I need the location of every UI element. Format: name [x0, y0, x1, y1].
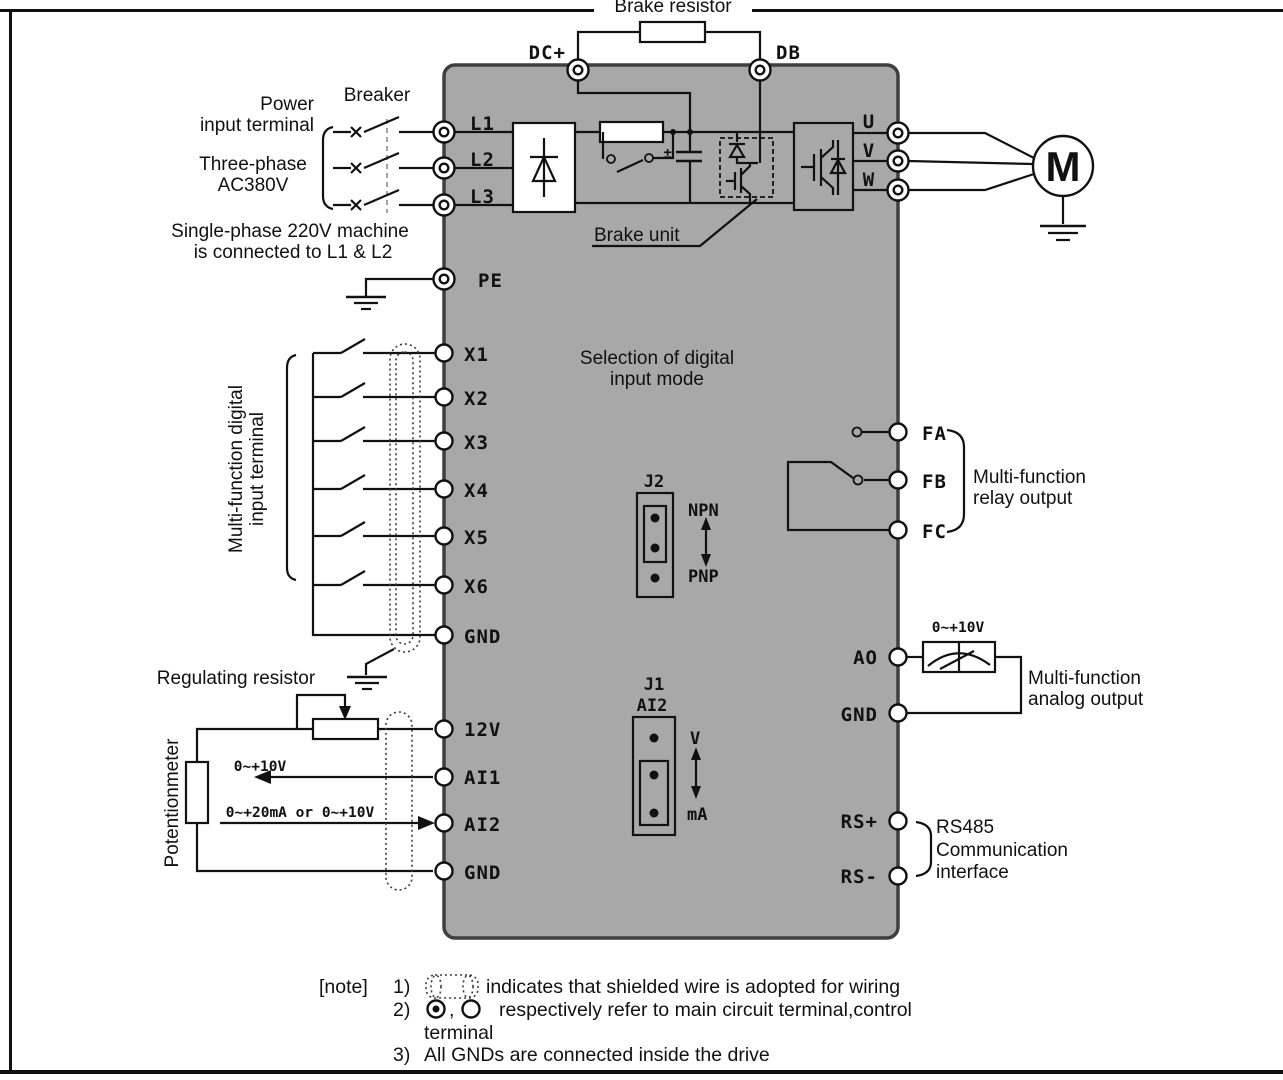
brake-resistor-label: Brake resistor: [614, 0, 732, 17]
note-2-text-cont: terminal: [424, 1022, 493, 1044]
note-3-text: All GNDs are connected inside the drive: [424, 1044, 770, 1066]
brake-resistor-symbol: [640, 22, 705, 42]
l2-label: L2: [470, 149, 495, 171]
terminal-dc-plus: [568, 60, 589, 81]
pe-label: PE: [478, 270, 503, 292]
breaker-label: Breaker: [344, 85, 411, 106]
gnd-out-label: GND: [841, 704, 878, 726]
brake-unit-label: Brake unit: [594, 225, 680, 246]
notes-section: [note] 1) indicates that shielded wire i…: [319, 975, 912, 1066]
relay-bracket: [947, 430, 964, 532]
note-3-number: 3): [393, 1044, 410, 1066]
regulating-resistor-label: Regulating resistor: [157, 668, 316, 689]
capacitor-polarity: ±: [663, 146, 672, 162]
j1-label: J1: [644, 675, 664, 695]
rs-minus-label: RS-: [841, 866, 878, 888]
terminal-l3: [434, 195, 455, 216]
terminal-w: [888, 180, 909, 201]
terminal-l1: [434, 122, 455, 143]
analog-output-section: 0~+10V Multi-function analog output: [907, 620, 1144, 713]
rs-plus-label: RS+: [841, 811, 878, 833]
ao-label: AO: [853, 647, 878, 669]
potentiometer-symbol: [186, 762, 208, 823]
terminal-x5: [436, 528, 453, 545]
relay-output-label-2: relay output: [973, 488, 1073, 509]
terminal-gnd-digital: [436, 627, 453, 644]
power-input-label-1: Power: [260, 94, 315, 115]
relay-output-label-1: Multi-function: [973, 467, 1086, 488]
terminal-rs-plus: [890, 813, 907, 830]
analog-output-label-1: Multi-function: [1028, 668, 1141, 689]
terminal-v: [888, 151, 909, 172]
ai1-range-label: 0~+10V: [234, 759, 287, 775]
j1-v-label: V: [690, 729, 700, 749]
ao-range-label: 0~+10V: [932, 620, 985, 636]
note-1-number: 1): [393, 976, 410, 998]
u-label: U: [863, 111, 875, 133]
power-input-section: Power input terminal Breaker Three-phase…: [171, 85, 433, 263]
gnd-analog-label: GND: [464, 862, 501, 884]
three-phase-label-2: AC380V: [218, 175, 289, 196]
x5-label: X5: [464, 527, 489, 549]
fb-label: FB: [922, 471, 947, 493]
terminal-ai2: [436, 815, 453, 832]
main-terminal-icon: [428, 1001, 445, 1018]
j2-npn-label: NPN: [688, 501, 719, 521]
terminal-fa: [890, 424, 907, 441]
terminal-gnd-out: [890, 705, 907, 722]
terminal-x6: [436, 577, 453, 594]
analog-input-section: Regulating resistor Potentionmeter 0~+10…: [157, 668, 435, 890]
rs485-bracket: [916, 822, 931, 876]
charging-resistor: [600, 122, 663, 142]
analog-output-label-2: analog output: [1028, 689, 1144, 710]
digital-group-label-2: input terminal: [247, 412, 268, 526]
j2-label: J2: [644, 472, 664, 492]
single-phase-note-1: Single-phase 220V machine: [171, 221, 409, 242]
terminal-rs-minus: [890, 868, 907, 885]
single-phase-note-2: is connected to L1 & L2: [194, 242, 393, 263]
terminal-fc: [890, 522, 907, 539]
12v-label: 12V: [464, 719, 501, 741]
terminal-gnd-analog: [436, 863, 453, 880]
regulating-resistor-symbol: [313, 719, 378, 739]
terminal-x2: [436, 389, 453, 406]
rs485-label-3: interface: [936, 862, 1009, 883]
x2-label: X2: [464, 388, 489, 410]
j1-ma-label: mA: [687, 805, 707, 825]
three-phase-label-1: Three-phase: [199, 154, 307, 175]
terminal-u: [888, 123, 909, 144]
breaker-pole-l3: [333, 190, 433, 210]
l3-label: L3: [470, 186, 495, 208]
terminal-x1: [436, 345, 453, 362]
rs485-section: RS485 Communication interface: [916, 817, 1068, 883]
terminal-db: [750, 60, 771, 81]
x4-label: X4: [464, 480, 489, 502]
note-2-separator: ,: [449, 999, 454, 1021]
breaker-pole-l2: [333, 153, 433, 173]
j1-sub-label: AI2: [637, 696, 668, 716]
digital-mode-label-1: Selection of digital: [580, 348, 734, 369]
rs485-label-1: RS485: [936, 817, 994, 838]
j2-pnp-label: PNP: [688, 567, 719, 587]
shielded-wire-icon: [426, 975, 478, 998]
pe-ground: [346, 279, 433, 309]
gnd-digital-label: GND: [464, 626, 501, 648]
shield-ground: [347, 649, 394, 689]
note-1-text: indicates that shielded wire is adopted …: [486, 976, 900, 998]
digital-bracket: [287, 355, 296, 580]
note-2-number: 2): [393, 999, 410, 1021]
ai2-range-label: 0~+20mA or 0~+10V: [226, 805, 375, 821]
breaker-pole-l1: [333, 117, 433, 137]
dc-plus-label: DC+: [529, 42, 566, 64]
ai2-label: AI2: [464, 814, 501, 836]
w-label: W: [863, 169, 875, 191]
power-input-label-2: input terminal: [200, 115, 314, 136]
motor-section: M: [908, 133, 1093, 240]
terminal-pe: [434, 269, 455, 290]
ai1-label: AI1: [464, 767, 501, 789]
potentiometer-label: Potentionmeter: [162, 738, 183, 868]
db-label: DB: [776, 42, 801, 64]
terminal-x4: [436, 481, 453, 498]
terminal-12v: [436, 721, 453, 738]
vfd-wiring-diagram-page: Brake resistor DC+ DB Power input termin…: [0, 0, 1283, 1080]
terminal-ao: [890, 649, 907, 666]
l1-label: L1: [470, 113, 495, 135]
terminal-ai1: [436, 769, 453, 786]
digital-switches: [313, 339, 435, 585]
digital-mode-label-2: input mode: [610, 369, 704, 390]
input-bracket: [323, 127, 333, 209]
note-2-text: respectively refer to main circuit termi…: [499, 999, 912, 1021]
digital-input-section: Multi-function digital input terminal: [226, 339, 435, 689]
terminal-x3: [436, 433, 453, 450]
x1-label: X1: [464, 344, 489, 366]
rs485-label-2: Communication: [936, 840, 1068, 861]
note-tag: [note]: [319, 976, 368, 998]
fa-label: FA: [922, 423, 947, 445]
x6-label: X6: [464, 576, 489, 598]
motor-letter: M: [1046, 143, 1081, 190]
control-terminal-icon: [463, 1001, 480, 1018]
digital-group-label-1: Multi-function digital: [226, 385, 247, 553]
x3-label: X3: [464, 432, 489, 454]
terminal-fb: [890, 472, 907, 489]
wiring-diagram: Brake resistor DC+ DB Power input termin…: [0, 0, 1283, 1080]
fc-label: FC: [922, 521, 947, 543]
v-label: V: [863, 140, 875, 162]
terminal-l2: [434, 158, 455, 179]
